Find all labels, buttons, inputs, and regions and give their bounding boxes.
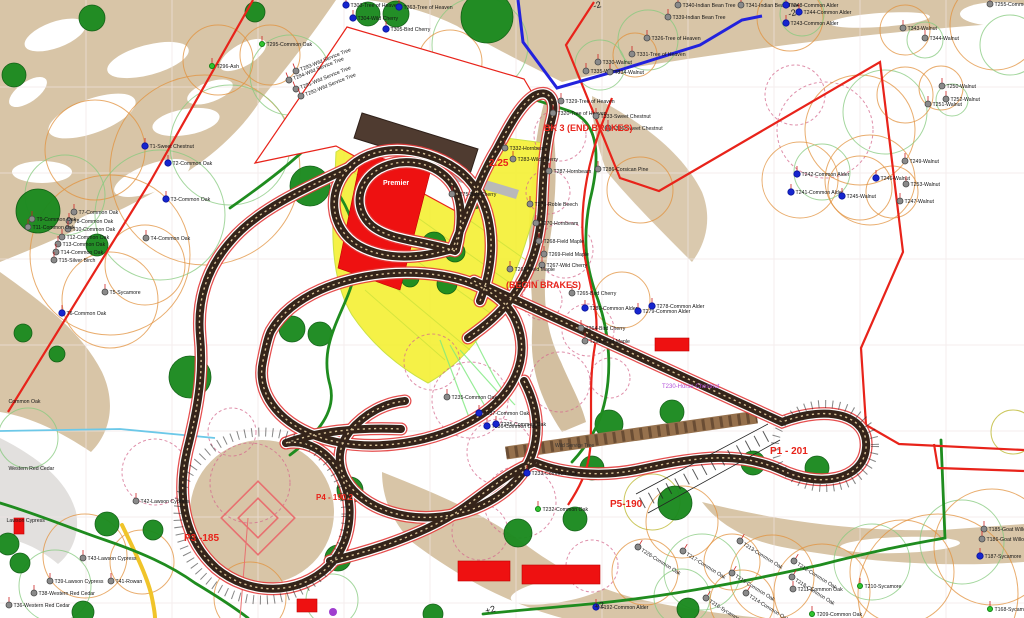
tree-dot: [987, 1, 993, 7]
tree-dot: [163, 196, 169, 202]
tree-label: T213-Common Oak: [742, 542, 784, 571]
map-annotation: P3 -185: [184, 533, 219, 544]
tree-dot: [675, 2, 681, 8]
tree-label: T4-Common Oak: [151, 236, 191, 242]
tree-dot: [595, 59, 601, 65]
tree-label: T42-Lawson Cypress: [141, 499, 190, 505]
tree-label: T43-Lawson Cypress: [88, 556, 137, 562]
tree-dot: [796, 9, 802, 15]
tree-dot: [979, 536, 985, 542]
tree-dot: [108, 578, 114, 584]
tree-marker: T241-Common Alder: [788, 184, 844, 196]
tree-label: T211-Common Oak: [798, 587, 844, 593]
tree-dot: [510, 156, 516, 162]
tree-dot: [133, 498, 139, 504]
tree-label: T233-Common Oak: [532, 471, 578, 477]
tree-label: T283-Wild Cherry: [518, 157, 559, 163]
tree-canopy: [14, 324, 32, 342]
tree-label: T217-Common Oak: [685, 552, 727, 581]
tree-dot: [593, 113, 599, 119]
tree-label: T38-Western Red Cedar: [39, 591, 96, 597]
tree-dot: [582, 338, 588, 344]
tree-label: Western Red Cedar: [9, 466, 55, 472]
tree-dot: [484, 423, 490, 429]
tree-label: T241-Common Alder: [796, 190, 844, 196]
tree-dot: [71, 209, 77, 215]
map-annotation: 2.25: [489, 158, 509, 169]
tree-label: T268-Field Maple: [544, 239, 584, 245]
tree-dot: [143, 235, 149, 241]
tree-label: T305-Bird Cherry: [391, 27, 431, 33]
tree-label: T10-Common Oak: [73, 227, 116, 233]
map-annotation: Wild Service Tree: [555, 443, 594, 449]
tree-marker: T280-Common Alder: [582, 300, 638, 312]
tree-label: T8-Common Oak: [74, 219, 114, 225]
tree-label: T269-Field Maple: [549, 252, 589, 258]
tree-dot: [788, 189, 794, 195]
tree-label: T244-Common Alder: [804, 10, 852, 16]
site-plan-canvas: T1-Sweet ChestnutT2-Common OakT3-Common …: [0, 0, 1024, 618]
tree-label: T2-Common Oak: [173, 161, 213, 167]
canopy-zone-circle: [991, 410, 1024, 454]
tree-label: T264-Bird Cherry: [586, 326, 626, 332]
tree-marker: T39-Lawson Cypress: [47, 573, 104, 585]
canopy-zone-circle: [704, 534, 760, 590]
tree-dot: [47, 578, 53, 584]
tree-label: T13-Common Oak: [63, 242, 106, 248]
tree-canopy: [143, 520, 163, 540]
tree-dot: [873, 175, 879, 181]
tree-label: T339-Indian Bean Tree: [673, 15, 726, 21]
stream-line: [0, 429, 215, 438]
tree-marker: T247-Walnut: [897, 193, 935, 205]
tree-label: T287-Hornbeam: [554, 169, 592, 175]
tree-dot: [783, 20, 789, 26]
tree-tick: [734, 566, 737, 570]
map-annotation: (BEGIN BRAKES): [506, 280, 581, 290]
tree-dot: [578, 325, 584, 331]
tree-dot: [396, 4, 402, 10]
tree-label: T278-Common Alder: [657, 304, 705, 310]
tree-dot: [142, 143, 148, 149]
tree-label: T248-Common Alder: [791, 3, 839, 9]
tree-canopy: [245, 2, 265, 22]
tree-canopy: [95, 512, 119, 536]
tree-label: T12-Common Oak: [67, 235, 110, 241]
tree-label: T41-Rowan: [116, 579, 143, 585]
tree-dot: [541, 251, 547, 257]
tree-label: T242-Common Alder: [802, 172, 850, 178]
tree-dot: [550, 110, 556, 116]
tree-dot: [165, 160, 171, 166]
tree-label: T9-Common Oak: [37, 217, 77, 223]
tree-marker: T209-Common Oak: [809, 606, 862, 618]
tree-marker: T3-Common Oak: [163, 191, 211, 203]
tree-dot: [558, 98, 564, 104]
tree-marker: T246-Walnut: [873, 170, 911, 182]
tree-label: T39-Lawson Cypress: [55, 579, 104, 585]
map-annotation: P5-190: [610, 499, 643, 510]
tree-dot: [977, 553, 983, 559]
tree-dot: [582, 305, 588, 311]
tree-label: Common Oak: [9, 399, 41, 405]
tree-label: T15-Silver Birch: [59, 258, 96, 264]
tree-dot: [635, 308, 641, 314]
tree-label: T5-Sycamore: [110, 290, 141, 296]
tree-label: Lawson Cypress: [7, 518, 46, 524]
tree-label: T243-Common Alder: [791, 21, 839, 27]
tree-label: T271-Roble Beech: [535, 202, 578, 208]
tree-label: T295-Common Oak: [267, 42, 313, 48]
tree-marker: T278-Common Alder: [649, 298, 705, 310]
tree-dot: [925, 101, 931, 107]
tree-label: T6-Common Oak: [67, 311, 107, 317]
tree-label: T251-Walnut: [933, 102, 963, 108]
tree-tick: [796, 554, 799, 558]
tree-dot: [783, 2, 789, 8]
tree-dot: [809, 611, 814, 616]
tree-label: T255-Common Alder: [995, 2, 1024, 8]
map-annotation: BK 3 (END BRAKES): [544, 123, 633, 133]
tree-canopy: [79, 5, 105, 31]
tree-marker: T235-Common Oak: [444, 389, 497, 401]
map-annotation: P4 - 190.2: [316, 493, 353, 502]
tree-dot: [493, 421, 499, 427]
tree-label: T265-Bird Cherry: [577, 291, 617, 297]
tree-marker: Common Oak: [9, 399, 41, 405]
tree-dot: [902, 158, 908, 164]
tree-marker: T6-Common Oak: [59, 305, 107, 317]
tree-label: T286-Corsican Pine: [603, 167, 649, 173]
tree-marker: T212-Common Oak: [789, 553, 841, 592]
tree-label: T247-Walnut: [905, 199, 935, 205]
utility-dot: [329, 608, 337, 616]
tree-dot: [794, 171, 800, 177]
tree-label: T334-Walnut: [615, 70, 645, 76]
tree-marker: T210-Sycamore: [857, 578, 901, 590]
tree-dot: [546, 168, 552, 174]
tree-dot: [897, 198, 903, 204]
tree-label: T266-Field Maple: [515, 267, 555, 273]
tree-dot: [209, 63, 214, 68]
tree-dot: [535, 506, 540, 511]
tree-label: T340-Indian Bean Tree: [683, 3, 736, 9]
tree-canopy: [423, 604, 443, 618]
tree-dot: [607, 69, 613, 75]
tree-dot: [31, 590, 37, 596]
tree-dot: [857, 583, 862, 588]
tree-label: T192-Common Alder: [601, 605, 649, 611]
tree-canopy: [72, 601, 94, 618]
tree-marker: T245-Walnut: [839, 188, 877, 200]
tree-canopy: [660, 400, 684, 424]
tree-label: T343-Walnut: [908, 26, 938, 32]
tree-dot: [533, 220, 539, 226]
tree-dot: [383, 26, 389, 32]
tree-dot: [25, 224, 31, 230]
tree-tick: [640, 540, 643, 544]
tree-marker: Lawson Cypress: [7, 518, 46, 524]
tree-label: T14-Common Oak: [61, 250, 104, 256]
tree-dot: [629, 51, 635, 57]
tree-dot: [59, 310, 65, 316]
tree-dot: [738, 2, 744, 8]
tree-label: T237-Common Oak: [484, 411, 530, 417]
tree-canopy: [10, 553, 30, 573]
tree-dot: [476, 410, 482, 416]
tree-label: T232-Common Oak: [543, 507, 589, 513]
tree-label: T329-Tree of Heaven: [566, 99, 615, 105]
tree-canopy: [677, 598, 699, 618]
tree-marker: T217-Common Oak: [678, 543, 730, 582]
tree-canopy: [2, 63, 26, 87]
tree-tick: [293, 64, 295, 69]
tree-label: T275-Bird Cherry: [457, 192, 497, 198]
tree-marker: T250-Walnut: [939, 78, 977, 90]
tree-dot: [350, 15, 356, 21]
tree-label: T344-Walnut: [930, 36, 960, 42]
tree-dot: [922, 35, 928, 41]
tree-dot: [507, 266, 513, 272]
tree-dot: [343, 2, 349, 8]
tree-dot: [939, 83, 945, 89]
tree-label: T235-Common Oak: [452, 395, 498, 401]
tree-dot: [569, 290, 575, 296]
tree-dot: [524, 470, 530, 476]
tree-label: T36-Western Red Cedar: [14, 603, 71, 609]
tree-marker: T242-Common Alder: [794, 166, 850, 178]
tree-label: T326-Tree of Heaven: [652, 36, 701, 42]
canopy-zone-circle: [762, 142, 838, 218]
tree-label: T11-Common Oak: [33, 225, 76, 231]
tree-label: T186-Goat Willow: [987, 537, 1024, 543]
tree-dot: [665, 14, 671, 20]
tree-label: T250-Walnut: [947, 84, 977, 90]
tree-label: T332-Hornbeam: [510, 146, 548, 152]
tree-dot: [59, 234, 65, 240]
tree-dot: [29, 216, 35, 222]
tree-marker: T5-Sycamore: [102, 284, 141, 296]
tree-dot: [449, 191, 455, 197]
tree-dot: [80, 555, 86, 561]
tree-label: T168-Sycamore: [995, 607, 1024, 613]
tree-dot: [987, 606, 992, 611]
tree-label: T3-Common Oak: [171, 197, 211, 203]
tree-canopy: [504, 519, 532, 547]
tree-marker: T43-Lawson Cypress: [80, 550, 137, 562]
tree-label: T331-Tree of Heaven: [637, 52, 686, 58]
tree-label: T1-Sweet Chestnut: [150, 144, 195, 150]
tree-label: T253-Walnut: [911, 182, 941, 188]
tree-dot: [649, 303, 655, 309]
tree-dot: [527, 201, 533, 207]
tree-marker: T232-Common Oak: [535, 501, 588, 513]
tree-marker: T36-Western Red Cedar: [6, 597, 70, 609]
tree-label: T187-Sycamore: [985, 554, 1022, 560]
tree-label: T185-Goat Willow: [989, 527, 1024, 533]
tree-dot: [583, 68, 589, 74]
tree-canopy: [0, 533, 19, 555]
tree-dot: [900, 25, 906, 31]
tree-dot: [903, 181, 909, 187]
tree-label: T245-Walnut: [847, 194, 877, 200]
tree-label: T209-Common Oak: [817, 612, 863, 618]
tree-dot: [444, 394, 450, 400]
tree-canopy: [49, 346, 65, 362]
tree-dot: [502, 145, 508, 151]
tree-label: T280-Common Alder: [590, 306, 638, 312]
map-annotation: T230-Horse Chestnut: [662, 384, 720, 390]
tree-dot: [595, 166, 601, 172]
tree-label: T249-Walnut: [910, 159, 940, 165]
tree-label: T262-Field Maple: [590, 339, 630, 345]
map-annotation: Premier: [383, 180, 409, 187]
tree-dot: [259, 41, 264, 46]
tree-dot: [536, 238, 542, 244]
tree-tick: [685, 544, 688, 548]
tree-label: T7-Common Oak: [79, 210, 119, 216]
tree-dot: [644, 35, 650, 41]
tree-label: T363-Tree of Heaven: [404, 5, 453, 11]
tree-dot: [6, 602, 12, 608]
tree-dot: [51, 257, 57, 263]
coaster-site-plan-svg: T1-Sweet ChestnutT2-Common OakT3-Common …: [0, 0, 1024, 618]
tree-label: T210-Sycamore: [865, 584, 902, 590]
tree-label: T333-Sweet Chestnut: [601, 114, 652, 120]
tree-label: T330-Walnut: [603, 60, 633, 66]
tree-marker: Western Red Cedar: [9, 466, 55, 472]
tree-dot: [839, 193, 845, 199]
tree-tick: [286, 73, 288, 78]
map-annotation: P1 - 201: [770, 446, 808, 457]
tree-dot: [102, 289, 108, 295]
tree-label: T303-Tree of Heaven: [351, 3, 400, 9]
tree-label: T225-Common Oak: [501, 422, 547, 428]
tree-label: T296-Ash: [217, 64, 240, 70]
tree-dot: [790, 586, 796, 592]
tree-label: T270-Hornbeam: [541, 221, 579, 227]
tree-marker: T214-Common Oak: [741, 585, 793, 618]
tree-label: T304-Wild Cherry: [358, 16, 399, 22]
tree-label: T226-Common Oak: [640, 548, 682, 577]
